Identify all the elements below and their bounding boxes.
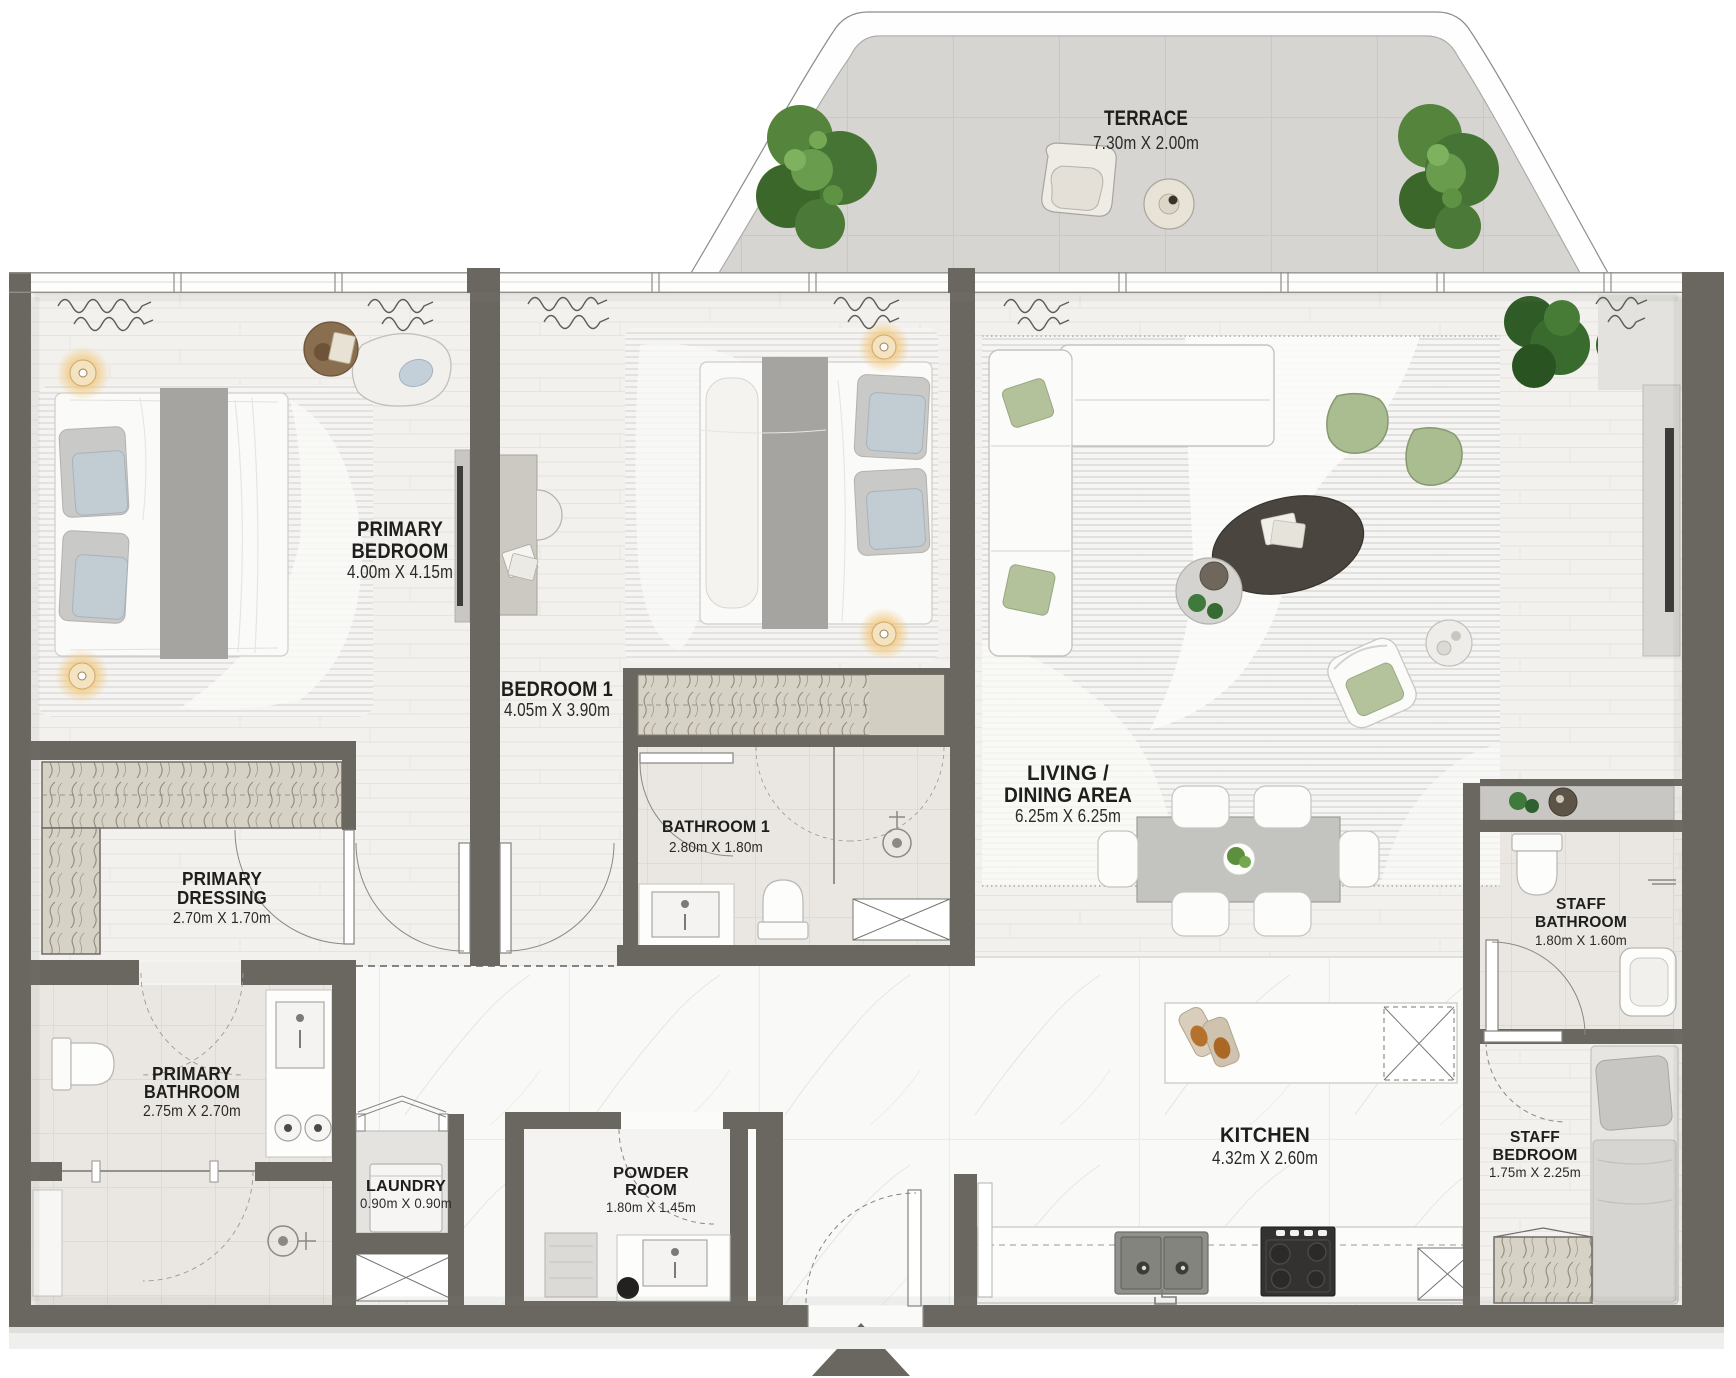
svg-text:BATHROOM 1: BATHROOM 1	[662, 817, 770, 836]
svg-text:6.25m X 6.25m: 6.25m X 6.25m	[1015, 806, 1121, 826]
svg-text:2.75m X 2.70m: 2.75m X 2.70m	[143, 1103, 241, 1120]
svg-text:2.80m X 1.80m: 2.80m X 1.80m	[669, 839, 763, 856]
svg-text:1.80m X 1.45m: 1.80m X 1.45m	[606, 1199, 696, 1215]
svg-text:TERRACE: TERRACE	[1104, 107, 1188, 130]
svg-text:DINING AREA: DINING AREA	[1004, 784, 1132, 807]
svg-text:STAFF: STAFF	[1510, 1129, 1560, 1146]
svg-text:BEDROOM: BEDROOM	[1493, 1147, 1578, 1164]
svg-text:0.90m X 0.90m: 0.90m X 0.90m	[360, 1195, 452, 1211]
svg-text:BEDROOM: BEDROOM	[352, 540, 449, 563]
svg-text:4.00m X 4.15m: 4.00m X 4.15m	[347, 562, 453, 582]
svg-text:4.05m X 3.90m: 4.05m X 3.90m	[504, 700, 610, 720]
svg-text:PRIMARY: PRIMARY	[182, 869, 262, 889]
svg-text:BEDROOM 1: BEDROOM 1	[501, 678, 613, 701]
svg-text:BATHROOM: BATHROOM	[144, 1082, 240, 1102]
svg-text:BATHROOM: BATHROOM	[1535, 914, 1627, 931]
svg-text:LIVING /: LIVING /	[1027, 762, 1109, 785]
svg-text:1.80m X 1.60m: 1.80m X 1.60m	[1535, 932, 1627, 948]
svg-text:7.30m X 2.00m: 7.30m X 2.00m	[1093, 133, 1199, 153]
svg-text:1.75m X 2.25m: 1.75m X 2.25m	[1489, 1165, 1581, 1180]
svg-text:STAFF: STAFF	[1556, 896, 1606, 913]
svg-text:PRIMARY: PRIMARY	[357, 518, 443, 541]
svg-text:2.70m X 1.70m: 2.70m X 1.70m	[173, 910, 271, 927]
svg-text:DRESSING: DRESSING	[177, 888, 267, 908]
svg-text:POWDER: POWDER	[613, 1165, 689, 1182]
svg-text:KITCHEN: KITCHEN	[1220, 1124, 1310, 1147]
svg-text:4.32m X 2.60m: 4.32m X 2.60m	[1212, 1148, 1318, 1168]
svg-text:PRIMARY: PRIMARY	[152, 1064, 232, 1084]
svg-text:ROOM: ROOM	[625, 1182, 677, 1199]
svg-text:LAUNDRY: LAUNDRY	[366, 1178, 446, 1195]
